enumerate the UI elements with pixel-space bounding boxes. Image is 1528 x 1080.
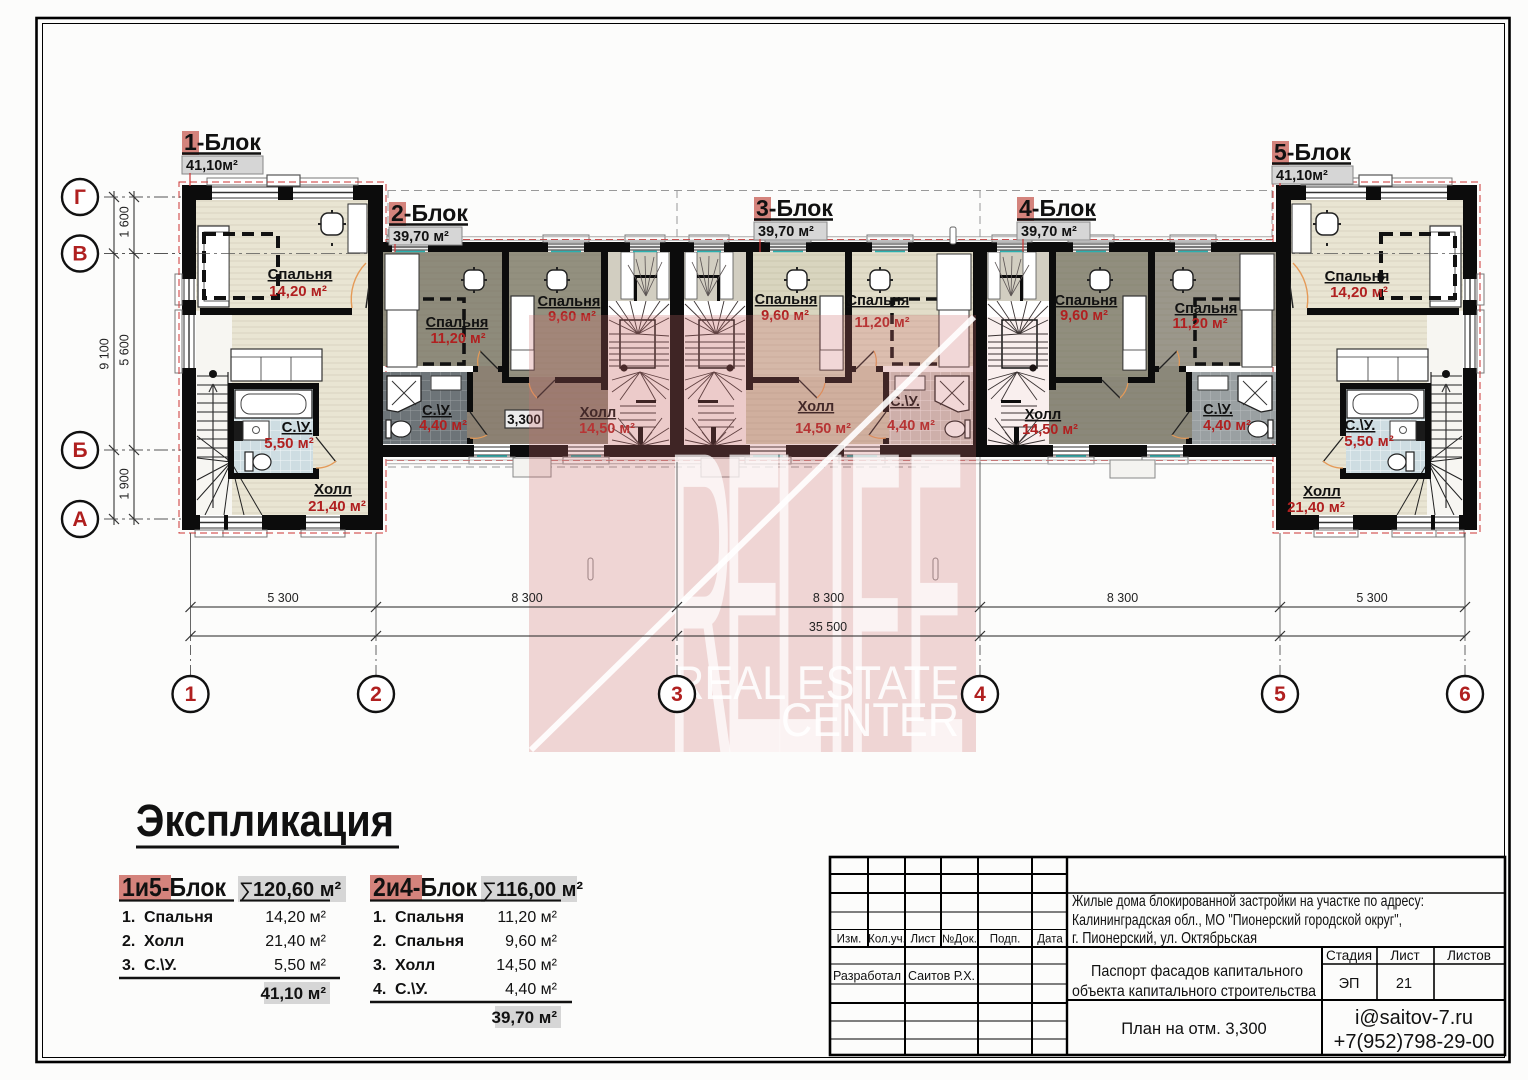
svg-text:5 600: 5 600 (118, 334, 132, 365)
svg-text:Спальня: Спальня (847, 293, 910, 309)
svg-text:Спальня: Спальня (1055, 293, 1118, 309)
svg-text:21: 21 (1396, 976, 1412, 992)
svg-text:4,40 м²: 4,40 м² (1203, 418, 1251, 434)
svg-text:9,60 м²: 9,60 м² (1060, 308, 1108, 324)
svg-text:5,50 м²: 5,50 м² (1344, 433, 1393, 450)
svg-text:6: 6 (1459, 683, 1471, 706)
svg-text:5,50 м²: 5,50 м² (274, 957, 327, 974)
svg-text:Дата: Дата (1037, 934, 1063, 946)
svg-text:В: В (72, 243, 87, 266)
svg-text:i@saitov-7.ru: i@saitov-7.ru (1355, 1007, 1473, 1029)
svg-text:Калининградская обл., МО "Пион: Калининградская обл., МО "Пионерский гор… (1072, 912, 1402, 929)
svg-text:14,50 м²: 14,50 м² (496, 957, 557, 974)
svg-text:1и5-Блок: 1и5-Блок (122, 872, 227, 902)
svg-text:∑: ∑ (482, 879, 497, 902)
svg-text:Спальня: Спальня (538, 294, 601, 310)
svg-text:1: 1 (185, 683, 197, 706)
svg-text:41,10м²: 41,10м² (186, 158, 238, 174)
svg-text:3.: 3. (373, 957, 386, 974)
svg-text:39,70 м²: 39,70 м² (1021, 224, 1077, 240)
svg-text:1 600: 1 600 (118, 206, 132, 237)
svg-text:2-Блок: 2-Блок (391, 200, 468, 226)
svg-text:Лист: Лист (911, 934, 937, 946)
svg-text:14,50 м²: 14,50 м² (1022, 422, 1078, 438)
svg-text:С.\У.: С.\У. (282, 419, 313, 436)
svg-text:Стадия: Стадия (1326, 948, 1372, 963)
svg-text:Подп.: Подп. (990, 934, 1021, 946)
svg-text:№Док.: №Док. (942, 934, 977, 946)
svg-text:39,70 м²: 39,70 м² (393, 229, 449, 245)
svg-text:3-Блок: 3-Блок (756, 195, 833, 221)
svg-text:4,40 м²: 4,40 м² (505, 981, 558, 998)
svg-text:5 300: 5 300 (1356, 591, 1387, 605)
svg-text:21,40 м²: 21,40 м² (308, 498, 366, 515)
svg-text:Холл: Холл (395, 957, 435, 974)
svg-text:5,50 м²: 5,50 м² (264, 435, 313, 452)
svg-text:41,10 м²: 41,10 м² (260, 984, 326, 1003)
svg-text:Б: Б (72, 439, 87, 462)
svg-text:Экспликация: Экспликация (136, 795, 394, 846)
svg-text:Спальня: Спальня (1175, 301, 1238, 317)
svg-text:8 300: 8 300 (813, 591, 844, 605)
svg-text:Саитов Р.Х.: Саитов Р.Х. (908, 969, 975, 983)
svg-text:E: E (904, 362, 966, 844)
svg-text:F: F (845, 362, 902, 844)
svg-text:С.\У.: С.\У. (1345, 417, 1376, 434)
svg-text:Спальня: Спальня (144, 909, 213, 926)
svg-text:5-Блок: 5-Блок (1274, 139, 1351, 165)
svg-text:4-Блок: 4-Блок (1019, 195, 1096, 221)
svg-text:г. Пионерский, ул. Октябрьская: г. Пионерский, ул. Октябрьская (1072, 930, 1257, 947)
svg-text:1.: 1. (122, 909, 135, 926)
svg-text:2.: 2. (373, 933, 386, 950)
svg-text:С.\У.: С.\У. (395, 981, 428, 998)
svg-text:Спальня: Спальня (426, 315, 489, 331)
svg-text:объекта капитального строитель: объекта капитального строительства (1072, 983, 1316, 1000)
svg-text:А: А (72, 508, 87, 531)
svg-text:2и4-Блок: 2и4-Блок (373, 872, 478, 902)
svg-text:3: 3 (671, 683, 683, 706)
svg-text:4: 4 (974, 683, 986, 706)
svg-text:11,20 м²: 11,20 м² (1172, 316, 1227, 332)
svg-text:2: 2 (370, 683, 382, 706)
svg-text:Кол.уч.: Кол.уч. (868, 934, 906, 946)
svg-text:+7(952)798-29-00: +7(952)798-29-00 (1334, 1031, 1495, 1053)
svg-text:5 300: 5 300 (267, 591, 298, 605)
svg-text:Изм.: Изм. (837, 934, 862, 946)
svg-text:11,20 м²: 11,20 м² (430, 331, 485, 347)
svg-text:8 300: 8 300 (1107, 591, 1138, 605)
svg-text:ЭП: ЭП (1339, 976, 1360, 992)
svg-text:Г: Г (74, 186, 86, 209)
svg-text:Холл: Холл (1303, 483, 1341, 500)
svg-text:Паспорт фасадов капитального: Паспорт фасадов капитального (1091, 963, 1303, 980)
svg-text:Спальня: Спальня (755, 292, 818, 308)
svg-text:21,40 м²: 21,40 м² (1287, 499, 1345, 516)
svg-text:Жилые дома блокированной застр: Жилые дома блокированной застройки на уч… (1072, 893, 1424, 910)
svg-text:9 100: 9 100 (98, 338, 112, 369)
svg-text:39,70 м²: 39,70 м² (758, 224, 814, 240)
svg-text:С.\У.: С.\У. (1203, 402, 1233, 418)
svg-text:120,60 м²: 120,60 м² (253, 879, 342, 901)
svg-text:Спальня: Спальня (268, 266, 333, 283)
svg-text:Спальня: Спальня (1325, 268, 1390, 285)
svg-text:14,20 м²: 14,20 м² (1330, 284, 1388, 301)
svg-text:9,60 м²: 9,60 м² (505, 933, 558, 950)
svg-text:2.: 2. (122, 933, 135, 950)
svg-text:4.: 4. (373, 981, 386, 998)
svg-text:С.\У.: С.\У. (144, 957, 177, 974)
svg-text:41,10м²: 41,10м² (1276, 168, 1328, 184)
svg-text:35 500: 35 500 (809, 620, 847, 634)
svg-text:1.: 1. (373, 909, 386, 926)
svg-text:11,20 м²: 11,20 м² (497, 909, 557, 926)
svg-text:8 300: 8 300 (511, 591, 542, 605)
svg-text:Листов: Листов (1447, 948, 1491, 963)
svg-text:∑: ∑ (239, 879, 254, 902)
svg-text:Спальня: Спальня (395, 909, 464, 926)
svg-text:Холл: Холл (144, 933, 184, 950)
svg-text:116,00 м²: 116,00 м² (496, 879, 583, 901)
svg-text:С.\У.: С.\У. (422, 403, 452, 419)
svg-text:Лист: Лист (1390, 948, 1419, 963)
svg-text:4,40 м²: 4,40 м² (419, 418, 467, 434)
svg-text:Разработал: Разработал (833, 969, 901, 983)
svg-text:5: 5 (1274, 683, 1286, 706)
svg-text:14,20 м²: 14,20 м² (265, 909, 326, 926)
svg-text:39,70 м²: 39,70 м² (491, 1008, 557, 1027)
svg-text:1 900: 1 900 (118, 468, 132, 499)
svg-text:Холл: Холл (314, 481, 352, 498)
svg-text:Холл: Холл (1025, 407, 1061, 423)
svg-text:План на отм. 3,300: План на отм. 3,300 (1121, 1020, 1266, 1038)
svg-text:1-Блок: 1-Блок (184, 129, 261, 155)
svg-text:14,20 м²: 14,20 м² (269, 283, 327, 300)
svg-text:3.: 3. (122, 957, 135, 974)
svg-text:CENTER: CENTER (781, 693, 959, 746)
svg-text:Спальня: Спальня (395, 933, 464, 950)
svg-text:21,40 м²: 21,40 м² (265, 933, 326, 950)
